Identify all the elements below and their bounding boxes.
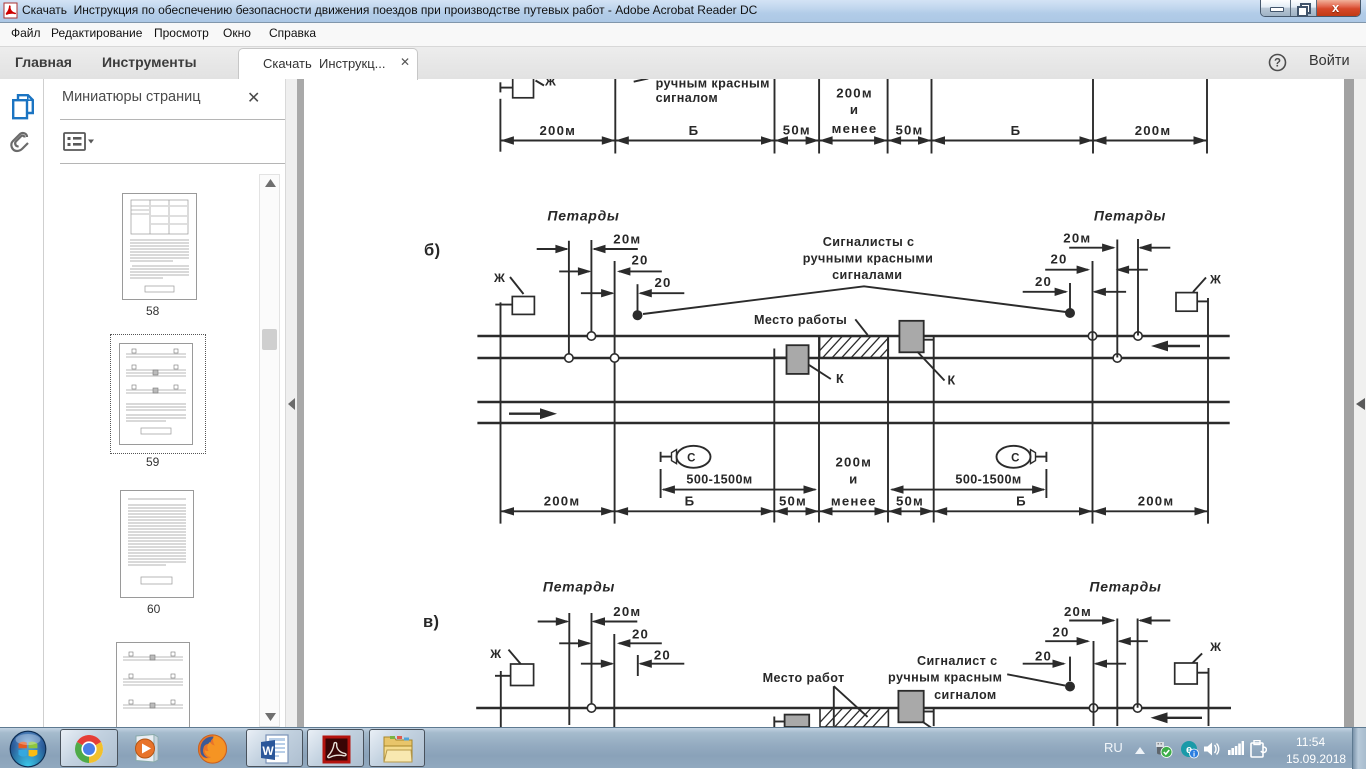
svg-text:20: 20 <box>654 275 671 290</box>
svg-text:500-1500м: 500-1500м <box>955 473 1021 487</box>
svg-text:Ж: Ж <box>489 647 501 661</box>
svg-text:ручным красным: ручным красным <box>888 670 1002 684</box>
svg-text:Петарды: Петарды <box>1094 208 1166 224</box>
svg-text:Ж: Ж <box>544 79 556 89</box>
svg-text:С: С <box>687 452 696 464</box>
svg-text:200м: 200м <box>1135 123 1172 138</box>
svg-text:20м: 20м <box>613 231 641 246</box>
svg-text:200м: 200м <box>1138 493 1175 508</box>
svg-text:50м: 50м <box>895 123 923 138</box>
svg-text:20м: 20м <box>1063 231 1091 246</box>
svg-text:Б: Б <box>1016 494 1027 509</box>
svg-text:20: 20 <box>1050 252 1067 267</box>
svg-text:С: С <box>1011 452 1020 464</box>
svg-text:i: i <box>1193 750 1195 759</box>
svg-text:20: 20 <box>654 648 671 663</box>
svg-text:Петарды: Петарды <box>547 208 619 224</box>
svg-text:50м: 50м <box>783 123 811 138</box>
svg-text:сигналом: сигналом <box>656 91 718 105</box>
svg-text:Б: Б <box>685 494 696 509</box>
svg-text:200м: 200м <box>836 455 873 470</box>
svg-text:20: 20 <box>632 627 649 642</box>
svg-text:50м: 50м <box>779 493 807 508</box>
svg-text:Сигналисты с: Сигналисты с <box>823 235 915 249</box>
svg-text:Б: Б <box>689 123 700 138</box>
svg-text:20: 20 <box>631 252 648 267</box>
svg-text:Ж: Ж <box>1209 272 1221 286</box>
svg-text:Ж: Ж <box>493 271 505 285</box>
svg-text:500-1500м: 500-1500м <box>686 472 752 486</box>
svg-text:20м: 20м <box>613 604 641 619</box>
svg-text:W: W <box>262 744 274 758</box>
svg-text:Сигналист с: Сигналист с <box>917 654 998 668</box>
svg-text:б): б) <box>424 242 441 260</box>
svg-text:в): в) <box>423 613 439 631</box>
svg-text:200м: 200м <box>540 123 577 138</box>
svg-text:Петарды: Петарды <box>543 579 615 595</box>
svg-text:?: ? <box>1274 58 1281 70</box>
svg-text:200м: 200м <box>836 86 873 101</box>
svg-text:и: и <box>849 471 858 486</box>
svg-text:Место работ: Место работ <box>763 671 845 685</box>
svg-text:менее: менее <box>832 121 878 136</box>
svg-text:20: 20 <box>1035 649 1052 664</box>
svg-text:Место работы: Место работы <box>754 313 847 327</box>
svg-text:и: и <box>850 102 859 117</box>
svg-text:200м: 200м <box>544 493 581 508</box>
svg-text:сигналами: сигналами <box>832 268 902 282</box>
svg-text:К: К <box>836 372 844 386</box>
svg-text:К: К <box>948 373 956 387</box>
svg-text:Ж: Ж <box>1209 640 1221 654</box>
svg-text:50м: 50м <box>896 493 924 508</box>
svg-text:Б: Б <box>1011 123 1022 138</box>
svg-text:ручными красными: ручными красными <box>803 251 934 265</box>
svg-text:ручным красным: ручным красным <box>656 79 770 90</box>
svg-text:20м: 20м <box>1064 604 1092 619</box>
svg-text:20: 20 <box>1035 274 1052 289</box>
svg-text:20: 20 <box>1052 625 1069 640</box>
svg-text:сигналом: сигналом <box>934 688 996 702</box>
svg-text:менее: менее <box>831 493 877 508</box>
svg-text:Петарды: Петарды <box>1089 579 1161 595</box>
